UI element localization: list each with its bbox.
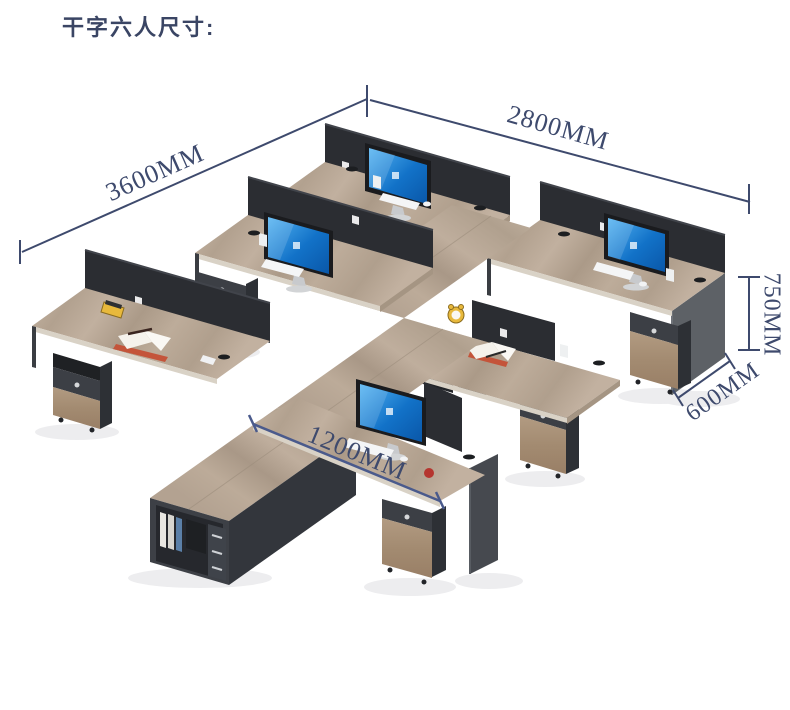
furniture-illustration xyxy=(0,0,790,710)
page-title: 干字六人尺寸: xyxy=(62,10,215,42)
dimension-label-750mm: 750MM xyxy=(758,265,785,365)
desk-left xyxy=(32,250,270,433)
product-dimension-diagram: 干字六人尺寸: 3600MM 2800MM 750MM 600MM 1200MM xyxy=(0,0,790,710)
